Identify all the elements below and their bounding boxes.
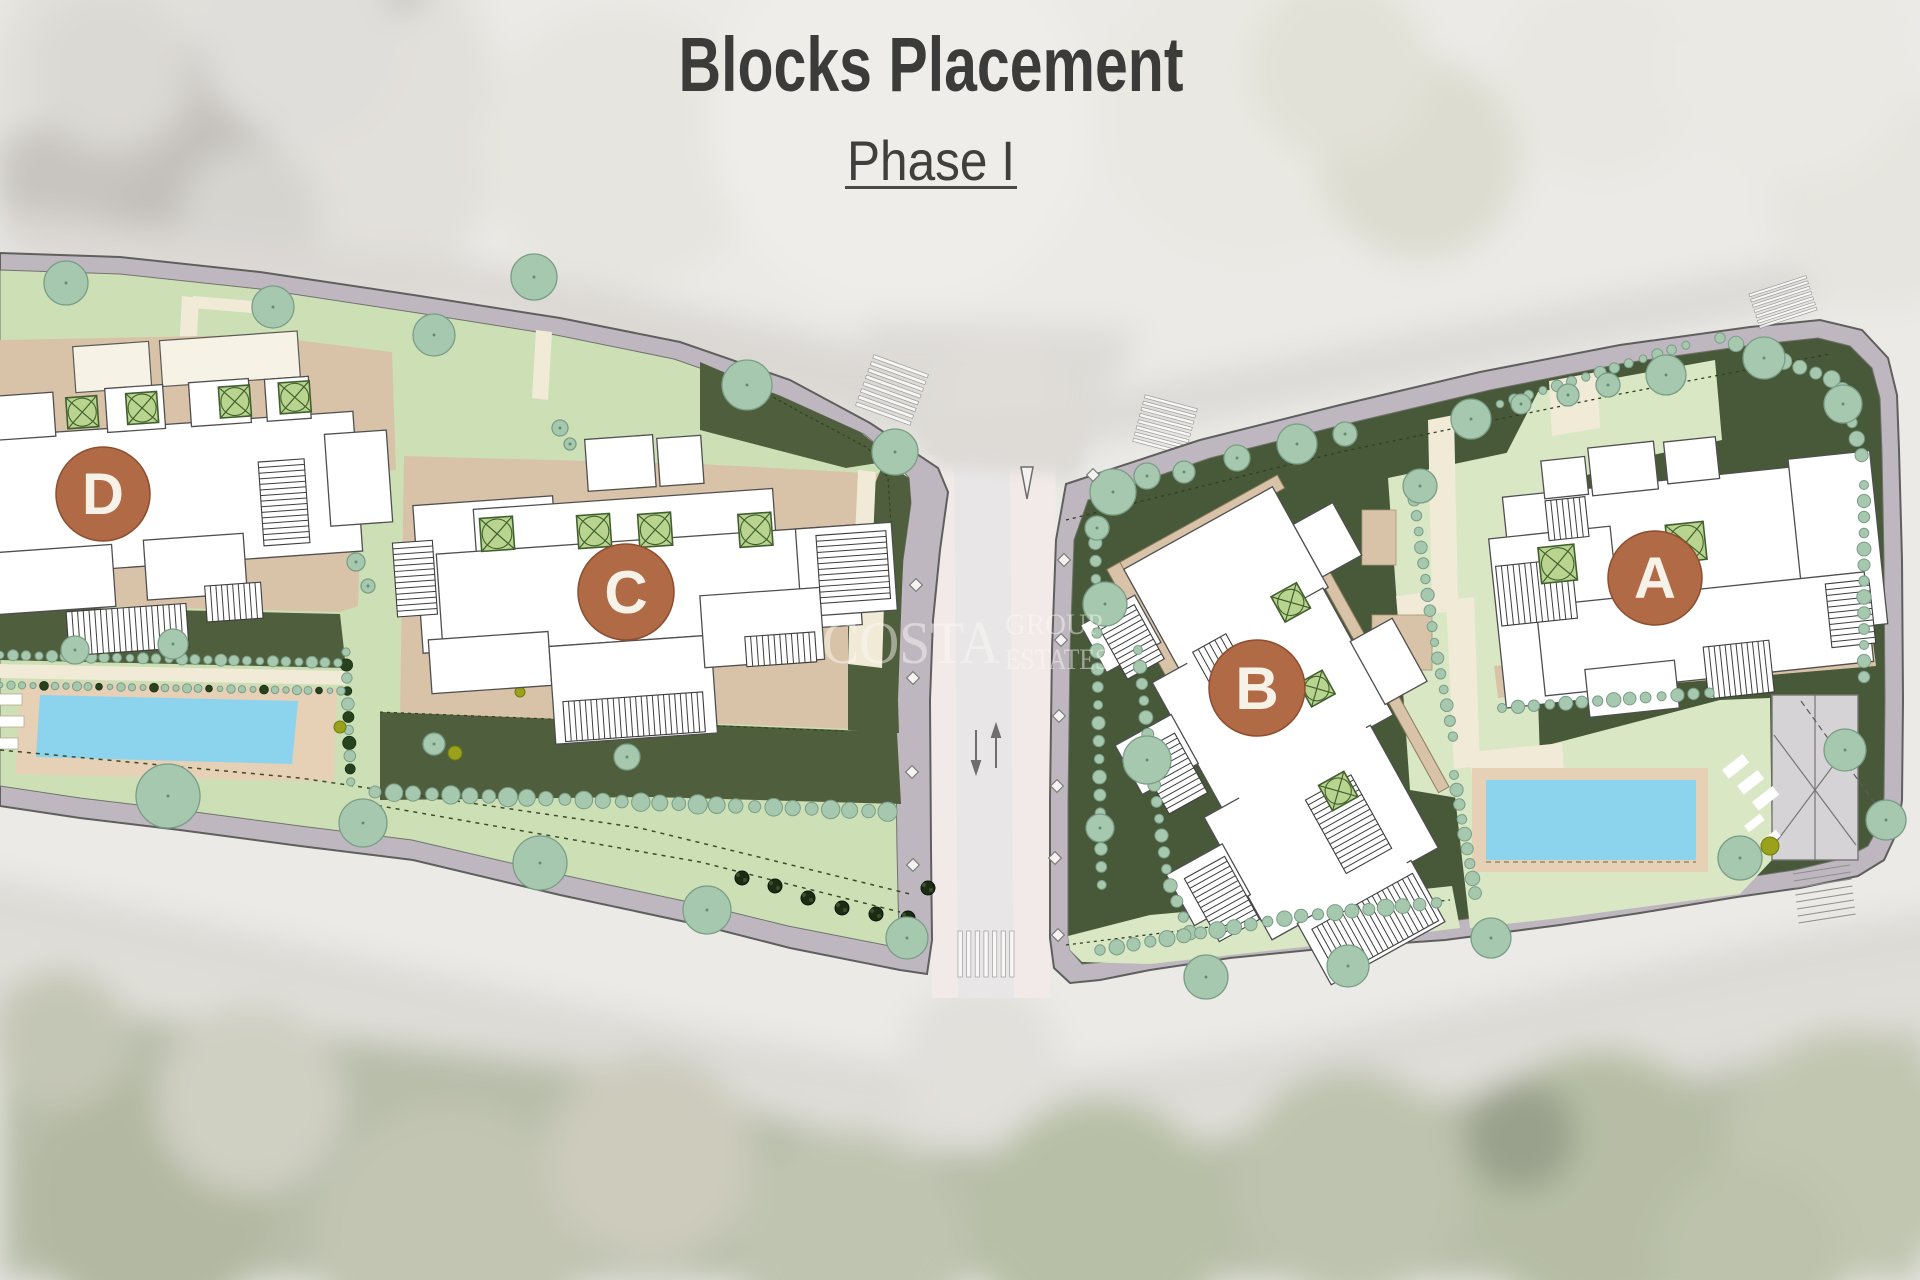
svg-text:Phase I: Phase I	[847, 129, 1015, 192]
svg-text:D: D	[82, 462, 124, 527]
svg-text:COSTA: COSTA	[822, 610, 1000, 676]
svg-text:B: B	[1235, 655, 1278, 722]
svg-text:A: A	[1634, 546, 1676, 611]
svg-text:C: C	[604, 559, 647, 626]
svg-text:Blocks Placement: Blocks Placement	[679, 22, 1184, 108]
svg-text:GROUP: GROUP	[1005, 608, 1103, 641]
svg-text:ESTATES: ESTATES	[1005, 643, 1109, 676]
